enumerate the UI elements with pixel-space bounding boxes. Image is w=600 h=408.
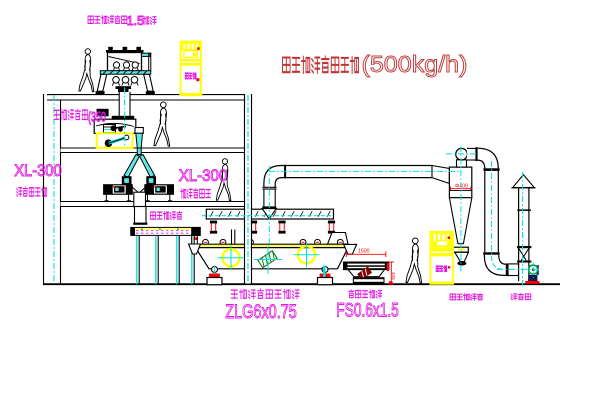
svg-text:XL-300: XL-300	[14, 161, 62, 180]
svg-text:345: 345	[391, 272, 396, 280]
svg-text:1500: 1500	[358, 249, 370, 255]
svg-text:ZLG6x0.75: ZLG6x0.75	[225, 302, 296, 323]
svg-text:1.5: 1.5	[127, 14, 144, 28]
svg-text:Φ400: Φ400	[455, 184, 468, 190]
svg-text:FS0.6x1.5: FS0.6x1.5	[336, 301, 399, 322]
svg-text:(350: (350	[88, 108, 106, 124]
svg-text:XL-300: XL-300	[179, 166, 227, 185]
svg-text:(500kg/h): (500kg/h)	[362, 51, 468, 77]
